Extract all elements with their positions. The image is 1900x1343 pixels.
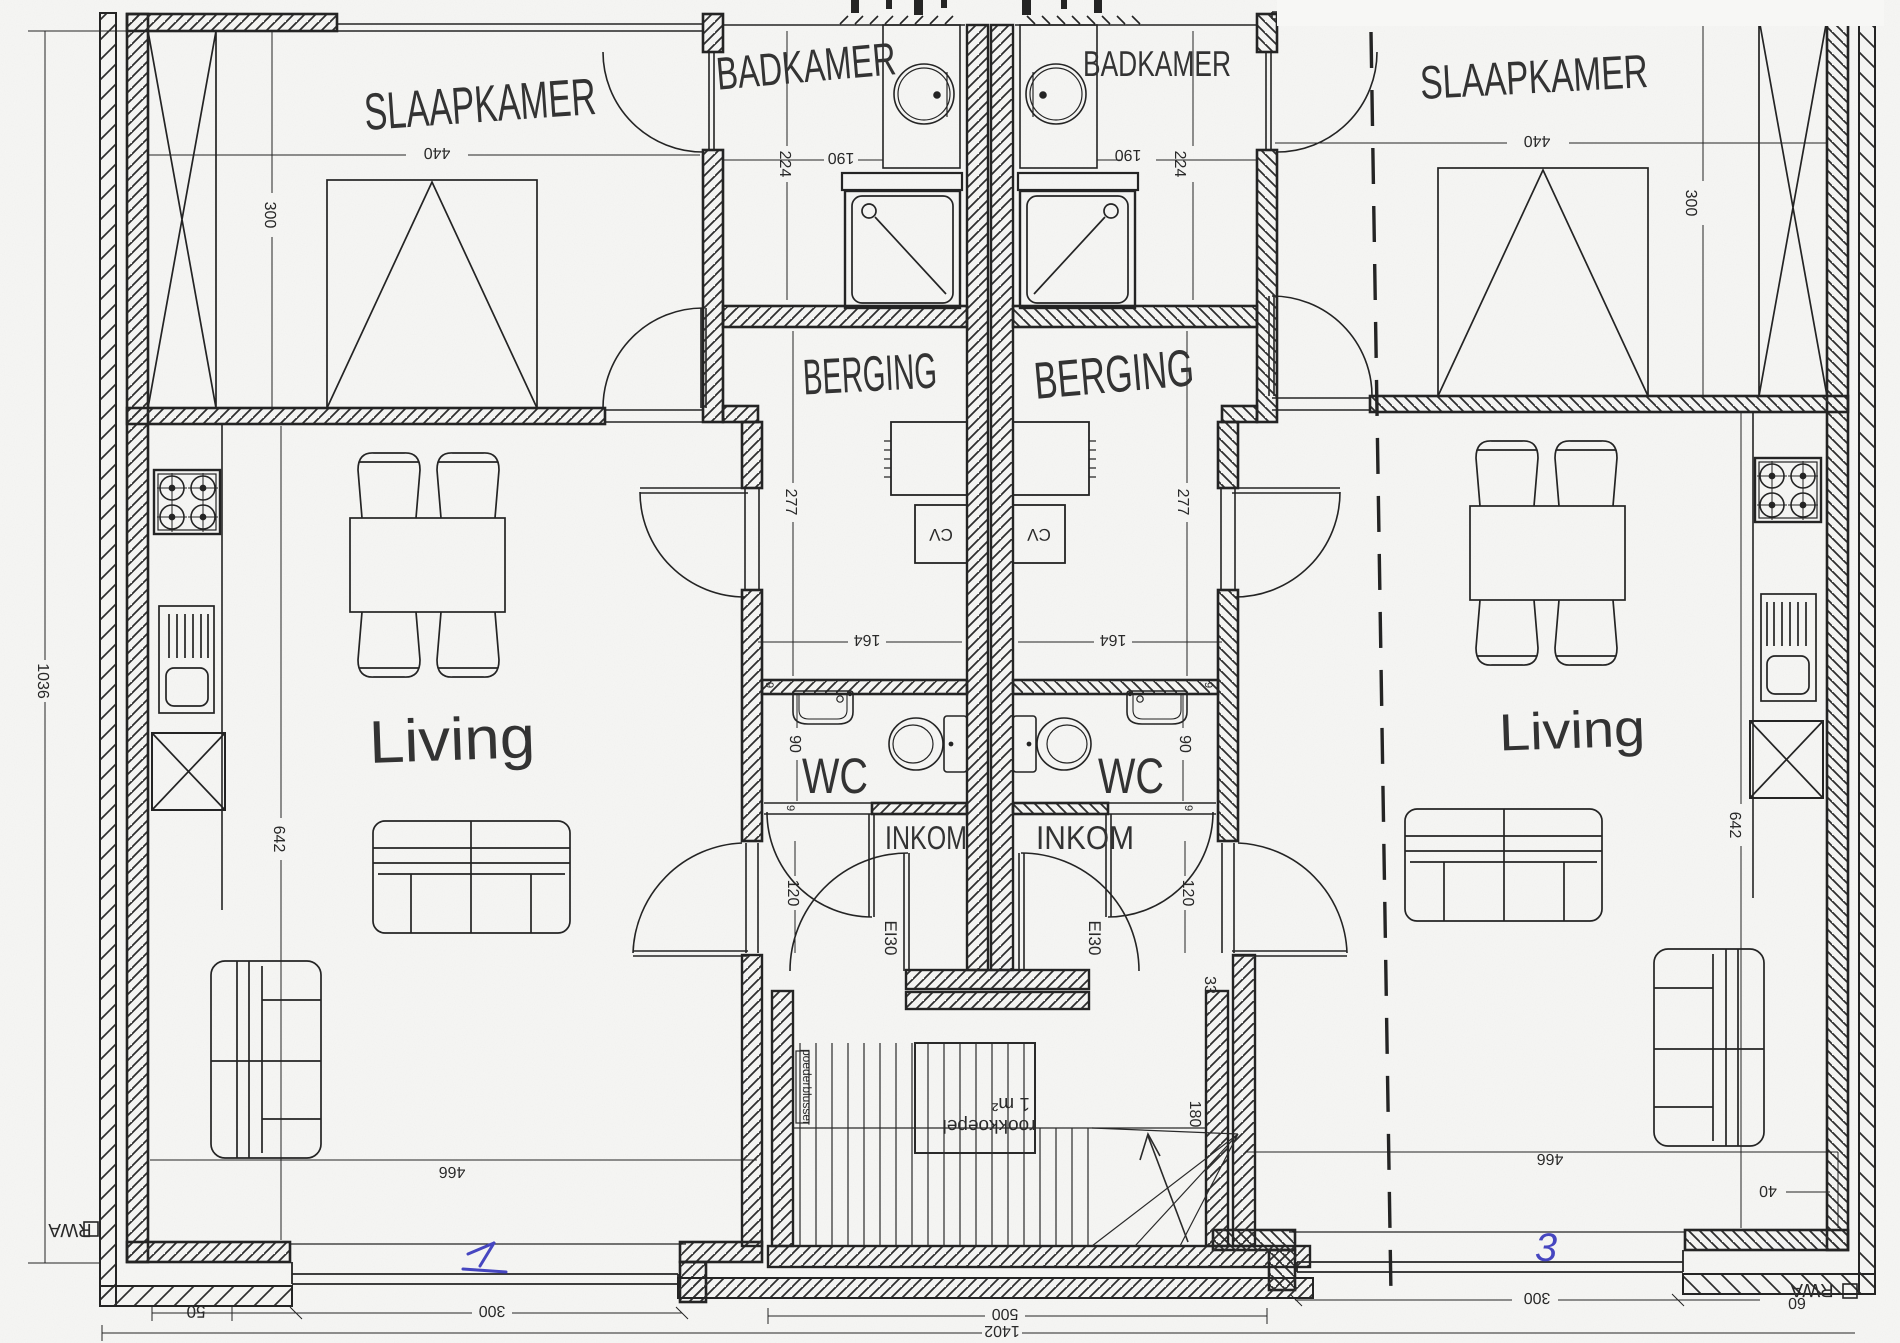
svg-text:190: 190 bbox=[828, 149, 855, 166]
svg-text:3: 3 bbox=[1535, 1226, 1557, 1270]
svg-text:poederblusser: poederblusser bbox=[800, 1049, 814, 1125]
svg-text:164: 164 bbox=[854, 631, 881, 648]
svg-text:Living: Living bbox=[1498, 699, 1646, 762]
svg-text:CV: CV bbox=[1027, 525, 1051, 544]
svg-text:90: 90 bbox=[1176, 735, 1193, 753]
svg-text:277: 277 bbox=[782, 489, 799, 516]
svg-text:40: 40 bbox=[1759, 1182, 1777, 1199]
svg-text:RWA: RWA bbox=[48, 1219, 92, 1240]
svg-text:50: 50 bbox=[187, 1302, 206, 1321]
svg-text:120: 120 bbox=[784, 880, 801, 907]
svg-text:300: 300 bbox=[1682, 190, 1699, 217]
svg-text:33: 33 bbox=[1201, 976, 1218, 994]
svg-text:90: 90 bbox=[786, 735, 803, 753]
svg-text:WC: WC bbox=[1098, 748, 1164, 804]
svg-text:WC: WC bbox=[802, 748, 868, 804]
svg-text:224: 224 bbox=[1171, 151, 1188, 178]
svg-text:190: 190 bbox=[1115, 146, 1142, 163]
svg-text:120: 120 bbox=[1179, 880, 1196, 907]
svg-text:500: 500 bbox=[992, 1305, 1019, 1322]
svg-text:1036: 1036 bbox=[34, 663, 51, 699]
svg-text:rookkoepel: rookkoepel bbox=[943, 1115, 1036, 1136]
svg-text:440: 440 bbox=[424, 144, 451, 161]
svg-text:9: 9 bbox=[784, 805, 796, 811]
svg-text:INKOM: INKOM bbox=[1036, 819, 1134, 856]
svg-text:642: 642 bbox=[1726, 812, 1743, 839]
svg-text:9: 9 bbox=[1202, 682, 1214, 688]
svg-text:466: 466 bbox=[1537, 1150, 1564, 1167]
svg-text:BERGING: BERGING bbox=[802, 343, 939, 406]
svg-text:300: 300 bbox=[479, 1302, 506, 1319]
svg-text:300: 300 bbox=[261, 202, 278, 229]
svg-text:277: 277 bbox=[1174, 489, 1191, 516]
svg-text:180: 180 bbox=[1186, 1101, 1203, 1128]
svg-text:466: 466 bbox=[439, 1163, 466, 1180]
svg-text:9: 9 bbox=[763, 682, 775, 688]
svg-text:440: 440 bbox=[1524, 132, 1551, 149]
svg-text:300: 300 bbox=[1524, 1289, 1551, 1306]
svg-text:642: 642 bbox=[270, 826, 287, 853]
svg-text:EI30: EI30 bbox=[1085, 921, 1104, 956]
svg-text:CV: CV bbox=[929, 525, 953, 544]
svg-text:164: 164 bbox=[1100, 631, 1127, 648]
svg-text:9: 9 bbox=[1182, 805, 1194, 811]
svg-text:60: 60 bbox=[1788, 1294, 1806, 1311]
svg-text:224: 224 bbox=[776, 151, 793, 178]
svg-text:EI30: EI30 bbox=[881, 921, 900, 956]
svg-text:Living: Living bbox=[368, 703, 536, 776]
svg-text:1402: 1402 bbox=[984, 1322, 1020, 1339]
svg-text:BADKAMER: BADKAMER bbox=[1083, 43, 1231, 84]
svg-text:INKOM: INKOM bbox=[885, 819, 967, 856]
svg-text:1 m²: 1 m² bbox=[992, 1093, 1030, 1114]
